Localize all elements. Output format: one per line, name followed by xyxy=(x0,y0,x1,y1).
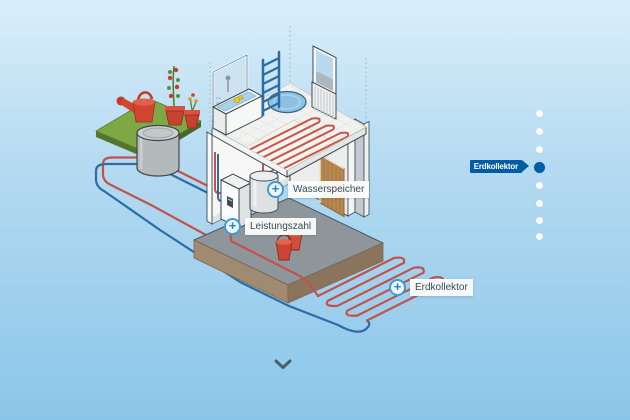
nav-dot-8[interactable] xyxy=(536,233,543,240)
nav-dot-5[interactable] xyxy=(536,182,543,189)
chevron-down-icon xyxy=(274,359,292,370)
left-wall-cut-edge xyxy=(207,132,212,224)
nav-dot-6[interactable] xyxy=(536,200,543,207)
callout-label: Erdkollektor xyxy=(410,279,473,296)
nav-dot-1[interactable] xyxy=(536,110,543,117)
bathroom-rug xyxy=(268,92,306,113)
cistern-tank xyxy=(137,126,179,177)
callout-label: Leistungszahl xyxy=(245,218,316,235)
nav-active-flag[interactable]: Erdkollektor xyxy=(470,160,522,173)
flower-pots xyxy=(165,66,200,128)
callout-wasserspeicher[interactable]: + Wasserspeicher xyxy=(267,181,369,198)
callout-leistungszahl[interactable]: + Leistungszahl xyxy=(224,218,316,235)
scroll-down-button[interactable] xyxy=(274,357,292,368)
plus-icon: + xyxy=(389,279,406,296)
nav-dot-3[interactable] xyxy=(536,146,543,153)
nav-dot-7[interactable] xyxy=(536,217,543,224)
nav-dot-2[interactable] xyxy=(536,128,543,135)
plus-icon: + xyxy=(224,218,241,235)
plus-icon: + xyxy=(267,181,284,198)
callout-label: Wasserspeicher xyxy=(288,181,369,198)
callout-erdkollektor[interactable]: + Erdkollektor xyxy=(389,279,473,296)
nav-dot-4-active[interactable] xyxy=(534,162,545,173)
app-stage: { "callouts": [ {"id": "wasserspeicher",… xyxy=(0,0,630,420)
heat-pump-illustration xyxy=(0,0,630,420)
